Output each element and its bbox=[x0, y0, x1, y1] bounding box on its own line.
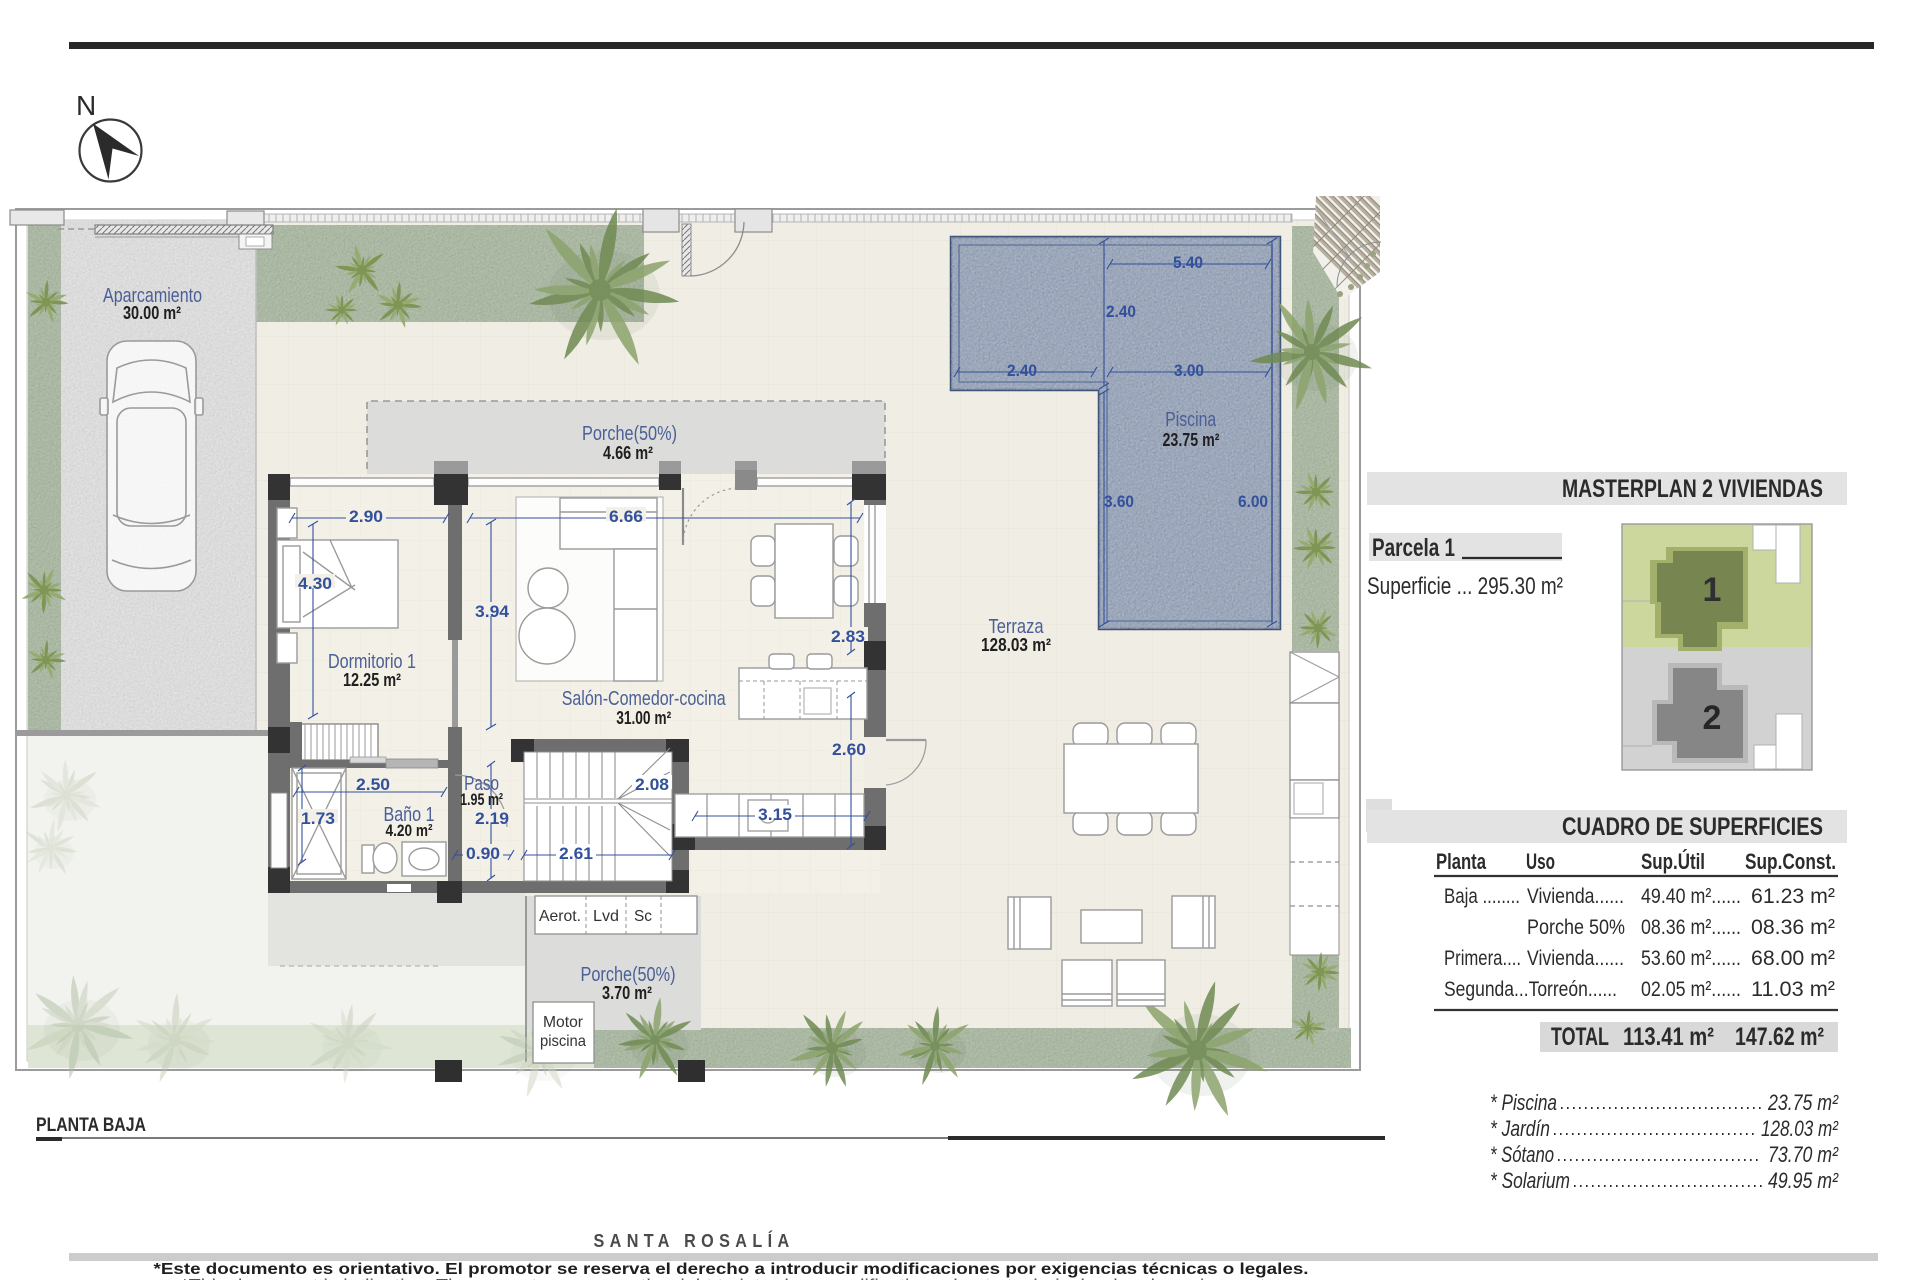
svg-text:2.50: 2.50 bbox=[356, 775, 390, 794]
svg-text:Vivienda......: Vivienda...... bbox=[1527, 885, 1624, 908]
svg-text:08.36 m²: 08.36 m² bbox=[1751, 916, 1835, 939]
svg-text:MASTERPLAN 2 VIVIENDAS: MASTERPLAN 2 VIVIENDAS bbox=[1562, 475, 1823, 503]
svg-text:1.73: 1.73 bbox=[301, 809, 335, 828]
svg-text:Uso: Uso bbox=[1526, 849, 1555, 874]
svg-text:2.60: 2.60 bbox=[832, 740, 866, 759]
svg-text:31.00 m²: 31.00 m² bbox=[616, 708, 671, 728]
svg-text:3.00: 3.00 bbox=[1174, 361, 1204, 380]
svg-text:53.60 m²......: 53.60 m²...... bbox=[1641, 947, 1741, 970]
svg-text:Planta: Planta bbox=[1436, 849, 1487, 874]
svg-text:Porche 50%: Porche 50% bbox=[1527, 916, 1625, 939]
svg-text:2.61: 2.61 bbox=[559, 844, 593, 863]
svg-text:Baja ........: Baja ........ bbox=[1444, 885, 1520, 908]
svg-text:49.40 m²......: 49.40 m²...... bbox=[1641, 885, 1741, 908]
svg-text:4.30: 4.30 bbox=[298, 574, 332, 593]
svg-text:piscina: piscina bbox=[540, 1033, 586, 1050]
svg-text:3.60: 3.60 bbox=[1104, 492, 1134, 511]
svg-text:1: 1 bbox=[1703, 571, 1722, 609]
svg-text:Segunda...Torreón......: Segunda...Torreón...... bbox=[1444, 978, 1617, 1001]
svg-text:* Sótano: * Sótano bbox=[1490, 1142, 1554, 1167]
svg-text:* Jardín: * Jardín bbox=[1490, 1116, 1550, 1141]
svg-text:3.15: 3.15 bbox=[758, 805, 792, 824]
svg-text:0.90: 0.90 bbox=[466, 844, 500, 863]
svg-text:128.03 m²: 128.03 m² bbox=[981, 635, 1051, 655]
svg-text:08.36 m²......: 08.36 m²...... bbox=[1641, 916, 1741, 939]
svg-text:11.03 m²: 11.03 m² bbox=[1751, 978, 1835, 1001]
svg-text:N: N bbox=[76, 90, 96, 121]
svg-text:1.95 m²: 1.95 m² bbox=[460, 790, 503, 809]
svg-text:73.70 m²: 73.70 m² bbox=[1768, 1142, 1839, 1167]
svg-text:3.70 m²: 3.70 m² bbox=[602, 983, 652, 1003]
svg-text:3.94: 3.94 bbox=[475, 602, 510, 621]
svg-text:Parcela 1: Parcela 1 bbox=[1372, 534, 1455, 562]
svg-text:Sup.Const.: Sup.Const. bbox=[1745, 849, 1836, 874]
svg-text:2.08: 2.08 bbox=[635, 775, 669, 794]
svg-text:Porche(50%): Porche(50%) bbox=[582, 423, 677, 445]
svg-text:2.40: 2.40 bbox=[1007, 361, 1037, 380]
svg-text:Aerot.: Aerot. bbox=[539, 908, 581, 925]
svg-text:Vivienda......: Vivienda...... bbox=[1527, 947, 1624, 970]
svg-text:2.83: 2.83 bbox=[831, 627, 865, 646]
svg-text:113.41 m²: 113.41 m² bbox=[1623, 1023, 1714, 1051]
svg-text:23.75 m²: 23.75 m² bbox=[1163, 430, 1220, 450]
svg-text:2.19: 2.19 bbox=[475, 809, 509, 828]
svg-text:5.40: 5.40 bbox=[1173, 253, 1203, 272]
svg-text:Motor: Motor bbox=[543, 1014, 584, 1031]
svg-text:Superficie ... 295.30 m²: Superficie ... 295.30 m² bbox=[1367, 573, 1563, 600]
svg-text:Lvd: Lvd bbox=[593, 908, 619, 925]
svg-text:68.00 m²: 68.00 m² bbox=[1751, 947, 1835, 970]
svg-text:128.03 m²: 128.03 m² bbox=[1761, 1116, 1839, 1141]
svg-text:2.40: 2.40 bbox=[1106, 302, 1136, 321]
svg-text:30.00 m²: 30.00 m² bbox=[123, 303, 181, 323]
svg-text:61.23 m²: 61.23 m² bbox=[1751, 885, 1835, 908]
svg-text:* Piscina: * Piscina bbox=[1490, 1090, 1557, 1115]
svg-text:Sup.Útil: Sup.Útil bbox=[1641, 849, 1705, 874]
svg-text:TOTAL: TOTAL bbox=[1551, 1023, 1609, 1051]
svg-text:2: 2 bbox=[1703, 699, 1722, 737]
svg-text:PLANTA BAJA: PLANTA BAJA bbox=[36, 1115, 146, 1136]
svg-text:Salón-Comedor-cocina: Salón-Comedor-cocina bbox=[562, 688, 727, 710]
svg-text:6.00: 6.00 bbox=[1238, 492, 1268, 511]
svg-text:4.20 m²: 4.20 m² bbox=[386, 821, 433, 840]
svg-text:Sc: Sc bbox=[634, 908, 652, 925]
svg-text:02.05 m²......: 02.05 m²...... bbox=[1641, 978, 1741, 1001]
svg-text:12.25 m²: 12.25 m² bbox=[343, 670, 401, 690]
svg-text:SANTA ROSALÍA: SANTA ROSALÍA bbox=[594, 1230, 795, 1251]
svg-text:6.66: 6.66 bbox=[609, 507, 643, 526]
svg-text:*Este documento es orientativo: *Este documento es orientativo. El promo… bbox=[154, 1261, 1309, 1278]
svg-text:* Solarium: * Solarium bbox=[1490, 1168, 1570, 1193]
svg-text:23.75 m²: 23.75 m² bbox=[1767, 1090, 1838, 1115]
svg-text:CUADRO DE SUPERFICIES: CUADRO DE SUPERFICIES bbox=[1562, 813, 1823, 841]
svg-text:4.66 m²: 4.66 m² bbox=[603, 443, 653, 463]
svg-text:49.95 m²: 49.95 m² bbox=[1768, 1168, 1839, 1193]
svg-text:Piscina: Piscina bbox=[1165, 409, 1217, 431]
svg-text:2.90: 2.90 bbox=[349, 507, 383, 526]
svg-text:Primera....: Primera.... bbox=[1444, 947, 1521, 970]
svg-text:147.62 m²: 147.62 m² bbox=[1735, 1023, 1824, 1051]
